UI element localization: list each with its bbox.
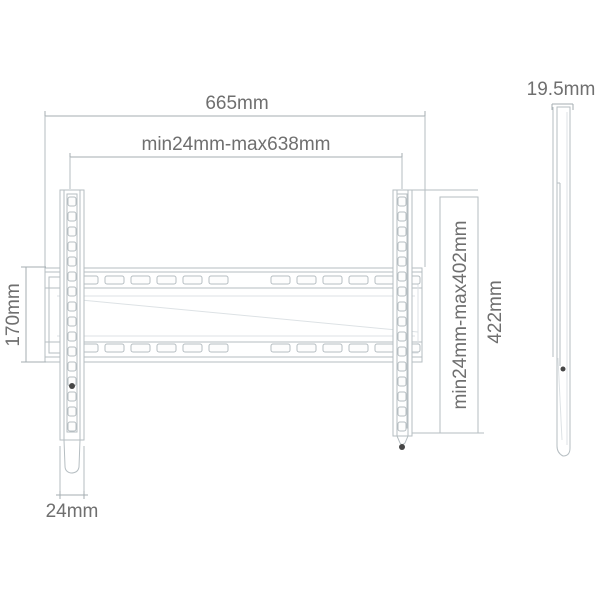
slot (398, 377, 406, 386)
slot (398, 302, 406, 311)
right-rail-foot (397, 436, 408, 445)
slot (398, 242, 406, 251)
wall-mount-drawing: 665mm min24mm-max638mm (0, 0, 600, 600)
slot (375, 344, 394, 352)
slot (297, 276, 316, 284)
slot (323, 344, 342, 352)
wall-plate (45, 268, 422, 362)
slot (398, 332, 406, 341)
left-rail-foot (64, 440, 80, 473)
slot (398, 422, 406, 431)
slot (271, 276, 290, 284)
slot (68, 212, 76, 221)
slot (68, 407, 76, 416)
slot (398, 272, 406, 281)
right-rail-screw-icon (399, 444, 405, 450)
rail-width-label: 24mm (46, 501, 99, 522)
slot (398, 197, 406, 206)
right-rail (393, 190, 412, 450)
slot (68, 362, 76, 371)
slot (105, 344, 124, 352)
slot (375, 276, 394, 284)
slot (68, 347, 76, 356)
slot (398, 287, 406, 296)
slot (209, 344, 228, 352)
dim-overall-width: 665mm (45, 93, 425, 267)
slot (398, 212, 406, 221)
side-profile-outline (557, 107, 570, 456)
slot (209, 276, 228, 284)
side-profile-screw-icon (561, 367, 566, 372)
slot (131, 276, 150, 284)
dim-rail-height: 422mm (485, 280, 506, 343)
slot (297, 344, 316, 352)
slot (157, 276, 176, 284)
slot (68, 197, 76, 206)
slot (68, 287, 76, 296)
slot (68, 302, 76, 311)
slot (398, 257, 406, 266)
side-view: 19.5mm (527, 79, 596, 456)
dim-horizontal-range: min24mm-max638mm (70, 134, 402, 189)
slot (68, 272, 76, 281)
slot (398, 407, 406, 416)
slot (68, 227, 76, 236)
slot (398, 227, 406, 236)
slot (398, 362, 406, 371)
left-rail-screw-icon (69, 383, 75, 389)
slot (68, 257, 76, 266)
slot (349, 344, 368, 352)
plate-height-label: 170mm (3, 283, 24, 346)
slot (183, 344, 202, 352)
slot (68, 242, 76, 251)
vertical-range-label: min24mm-max402mm (450, 221, 471, 410)
slot (68, 422, 76, 431)
dimension-diagram: 665mm min24mm-max638mm (0, 0, 600, 600)
slot (398, 317, 406, 326)
profile-depth-label: 19.5mm (527, 79, 596, 100)
slot (271, 344, 290, 352)
slot (183, 276, 202, 284)
slot (68, 392, 76, 401)
slot (131, 344, 150, 352)
dim-plate-height: 170mm (3, 267, 46, 362)
slot (157, 344, 176, 352)
slot (349, 276, 368, 284)
slot (398, 392, 406, 401)
slot (398, 347, 406, 356)
rail-height-label: 422mm (485, 280, 506, 343)
slot (68, 317, 76, 326)
horizontal-range-label: min24mm-max638mm (142, 134, 331, 155)
slot (105, 276, 124, 284)
overall-width-label: 665mm (205, 93, 268, 114)
left-rail (60, 190, 84, 473)
slot (68, 332, 76, 341)
dim-vertical-range: min24mm-max402mm (412, 190, 484, 433)
slot (323, 276, 342, 284)
